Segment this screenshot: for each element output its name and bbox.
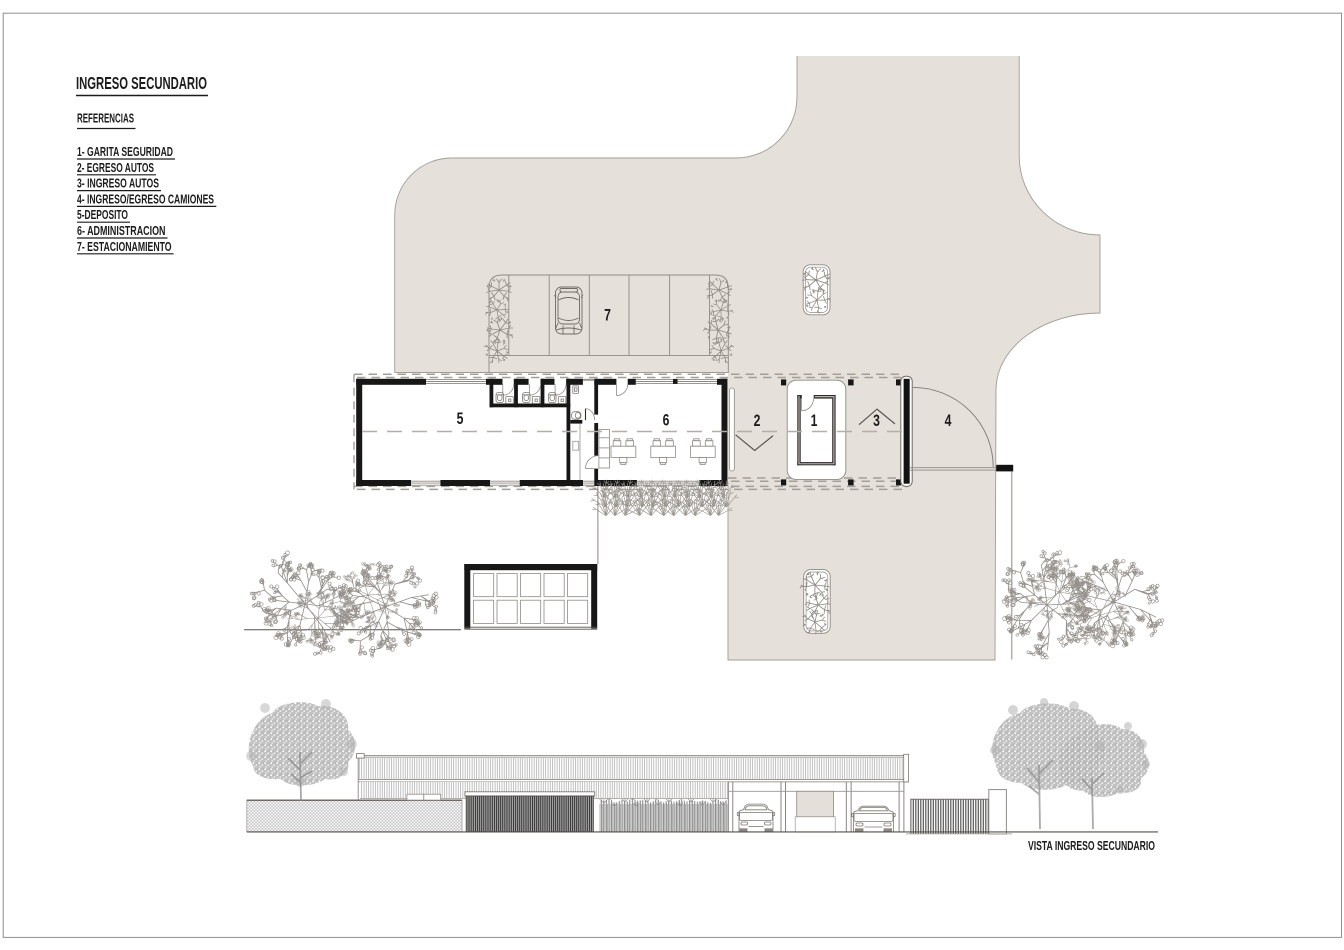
svg-text:7: 7 [604, 307, 611, 325]
svg-text:INGRESO SECUNDARIO: INGRESO SECUNDARIO [76, 73, 207, 93]
svg-text:7- ESTACIONAMIENTO: 7- ESTACIONAMIENTO [77, 240, 172, 254]
svg-text:2: 2 [754, 412, 761, 430]
svg-text:VISTA INGRESO SECUNDARIO: VISTA INGRESO SECUNDARIO [1028, 839, 1155, 853]
svg-text:2- EGRESO AUTOS: 2- EGRESO AUTOS [77, 161, 154, 175]
svg-text:1- GARITA SEGURIDAD: 1- GARITA SEGURIDAD [77, 145, 173, 159]
svg-text:4- INGRESO/EGRESO CAMIONES: 4- INGRESO/EGRESO CAMIONES [77, 192, 214, 206]
svg-text:3- INGRESO AUTOS: 3- INGRESO AUTOS [77, 177, 159, 191]
svg-text:1: 1 [811, 412, 818, 430]
svg-text:4: 4 [945, 412, 952, 430]
svg-text:5-DEPOSITO: 5-DEPOSITO [77, 208, 128, 222]
svg-text:6: 6 [663, 412, 670, 430]
svg-text:5: 5 [457, 410, 464, 428]
svg-text:6- ADMINISTRACION: 6- ADMINISTRACION [77, 224, 166, 238]
svg-text:3: 3 [873, 412, 880, 430]
svg-text:REFERENCIAS: REFERENCIAS [77, 110, 134, 125]
